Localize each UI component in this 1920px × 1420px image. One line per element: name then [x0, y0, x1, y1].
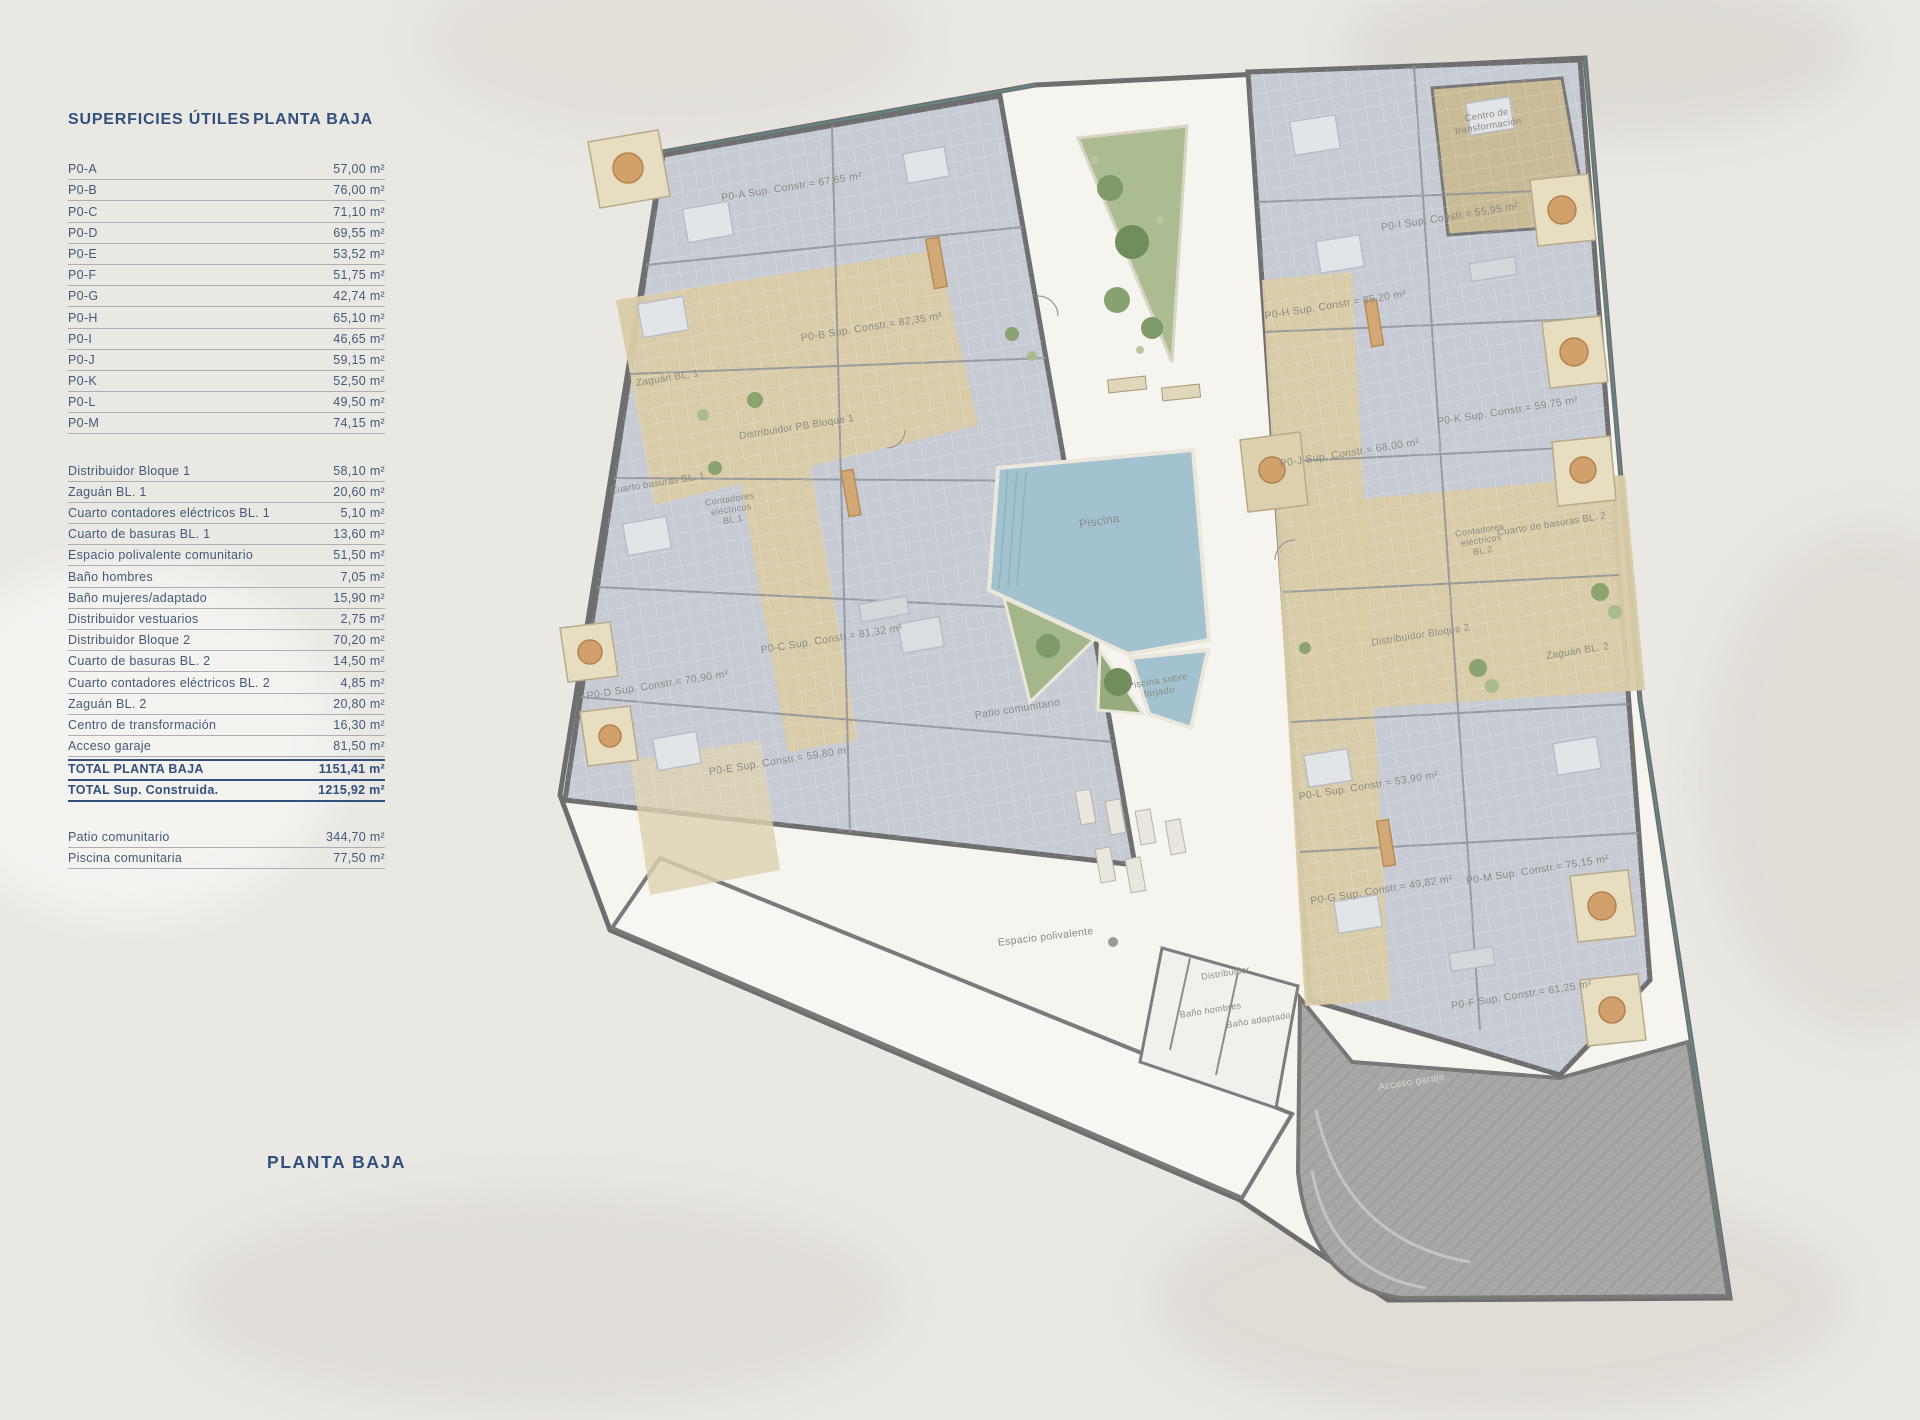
row-label: P0-B [68, 183, 97, 197]
table-row: P0-K52,50 m² [68, 371, 385, 392]
table-row: P0-I46,65 m² [68, 329, 385, 350]
table-row: P0-D69,55 m² [68, 223, 385, 244]
hall-column [1108, 937, 1118, 947]
table-row: TOTAL PLANTA BAJA1151,41 m² [68, 759, 385, 781]
row-value: 13,60 m² [333, 527, 385, 541]
row-label: Distribuidor Bloque 2 [68, 633, 190, 647]
row-label: P0-L [68, 395, 96, 409]
row-label: P0-A [68, 162, 97, 176]
table-row: Zaguán BL. 120,60 m² [68, 482, 385, 503]
row-label: P0-E [68, 247, 97, 261]
table-row: TOTAL Sup. Construida.1215,92 m² [68, 781, 385, 803]
row-value: 77,50 m² [333, 851, 385, 865]
table-row: Distribuidor Bloque 158,10 m² [68, 460, 385, 481]
row-label: P0-J [68, 353, 95, 367]
row-value: 7,05 m² [341, 570, 385, 584]
row-label: Cuarto de basuras BL. 1 [68, 527, 210, 541]
common-area-rows: Distribuidor Bloque 158,10 m²Zaguán BL. … [68, 460, 385, 757]
row-label: Distribuidor vestuarios [68, 612, 199, 626]
row-value: 65,10 m² [333, 311, 385, 325]
table-row: Cuarto de basuras BL. 214,50 m² [68, 651, 385, 672]
row-value: 53,52 m² [333, 247, 385, 261]
row-label: P0-C [68, 205, 98, 219]
table-row: P0-M74,15 m² [68, 413, 385, 434]
row-value: 74,15 m² [333, 416, 385, 430]
table-row: Piscina comunitaria77,50 m² [68, 848, 385, 870]
row-label: P0-M [68, 416, 99, 430]
row-label: Zaguán BL. 2 [68, 697, 147, 711]
row-value: 76,00 m² [333, 183, 385, 197]
table-row: Espacio polivalente comunitario51,50 m² [68, 545, 385, 566]
row-label: Zaguán BL. 1 [68, 485, 147, 499]
row-value: 2,75 m² [341, 612, 385, 626]
row-label: Baño hombres [68, 570, 153, 584]
table-row: P0-G42,74 m² [68, 286, 385, 307]
row-value: 15,90 m² [333, 591, 385, 605]
row-value: 70,20 m² [333, 633, 385, 647]
apartment-rows: P0-A57,00 m²P0-B76,00 m²P0-C71,10 m²P0-D… [68, 159, 385, 434]
row-label: Acceso garaje [68, 739, 151, 753]
row-value: 46,65 m² [333, 332, 385, 346]
row-label: Cuarto contadores eléctricos BL. 1 [68, 506, 270, 520]
table-row: P0-H65,10 m² [68, 307, 385, 328]
sheet-title: PLANTA BAJA [267, 1152, 406, 1173]
row-value: 71,10 m² [333, 205, 385, 219]
table-row: P0-C71,10 m² [68, 201, 385, 222]
row-value: 42,74 m² [333, 289, 385, 303]
row-value: 344,70 m² [326, 830, 385, 844]
table-row: P0-L49,50 m² [68, 392, 385, 413]
row-value: 57,00 m² [333, 162, 385, 176]
table-row: Centro de transformación16,30 m² [68, 715, 385, 736]
row-label: Patio comunitario [68, 830, 170, 844]
row-value: 58,10 m² [333, 464, 385, 478]
row-value: 51,50 m² [333, 548, 385, 562]
row-label: P0-G [68, 289, 98, 303]
row-value: 69,55 m² [333, 226, 385, 240]
table-row: Cuarto de basuras BL. 113,60 m² [68, 524, 385, 545]
table-row: Zaguán BL. 220,80 m² [68, 694, 385, 715]
row-label: P0-F [68, 268, 96, 282]
exterior-rows: Patio comunitario344,70 m²Piscina comuni… [68, 826, 385, 869]
table-row: P0-F51,75 m² [68, 265, 385, 286]
row-value: 49,50 m² [333, 395, 385, 409]
row-value: 20,60 m² [333, 485, 385, 499]
table-row: P0-B76,00 m² [68, 180, 385, 201]
row-label: Distribuidor Bloque 1 [68, 464, 190, 478]
row-value: 20,80 m² [333, 697, 385, 711]
row-label: Piscina comunitaria [68, 851, 182, 865]
row-value: 59,15 m² [333, 353, 385, 367]
row-value: 1151,41 m² [319, 762, 385, 776]
row-label: Baño mujeres/adaptado [68, 591, 207, 605]
row-label: Cuarto contadores eléctricos BL. 2 [68, 676, 270, 690]
row-label: Cuarto de basuras BL. 2 [68, 654, 210, 668]
row-value: 1215,92 m² [318, 783, 385, 797]
table-row: P0-J59,15 m² [68, 350, 385, 371]
row-label: Centro de transformación [68, 718, 216, 732]
row-value: 51,75 m² [333, 268, 385, 282]
surface-table: SUPERFICIES ÚTILES PLANTA BAJA P0-A57,00… [68, 111, 385, 869]
table-row: Baño mujeres/adaptado15,90 m² [68, 588, 385, 609]
table-row: P0-E53,52 m² [68, 244, 385, 265]
table-row: Distribuidor vestuarios2,75 m² [68, 609, 385, 630]
table-title: SUPERFICIES ÚTILES [68, 111, 250, 129]
table-row: Cuarto contadores eléctricos BL. 15,10 m… [68, 503, 385, 524]
table-header: SUPERFICIES ÚTILES PLANTA BAJA [68, 111, 385, 129]
row-label: P0-I [68, 332, 92, 346]
table-subtitle: PLANTA BAJA [253, 111, 385, 129]
row-value: 5,10 m² [341, 506, 385, 520]
row-label: TOTAL Sup. Construida. [68, 783, 218, 797]
row-label: P0-H [68, 311, 98, 325]
row-value: 81,50 m² [333, 739, 385, 753]
table-row: P0-A57,00 m² [68, 159, 385, 180]
row-value: 52,50 m² [333, 374, 385, 388]
row-value: 16,30 m² [333, 718, 385, 732]
table-row: Cuarto contadores eléctricos BL. 24,85 m… [68, 672, 385, 693]
table-row: Acceso garaje81,50 m² [68, 736, 385, 757]
row-value: 4,85 m² [341, 676, 385, 690]
row-label: P0-K [68, 374, 97, 388]
table-row: Distribuidor Bloque 270,20 m² [68, 630, 385, 651]
row-label: P0-D [68, 226, 98, 240]
table-row: Baño hombres7,05 m² [68, 566, 385, 587]
total-rows: TOTAL PLANTA BAJA1151,41 m²TOTAL Sup. Co… [68, 759, 385, 802]
table-row: Patio comunitario344,70 m² [68, 826, 385, 848]
row-value: 14,50 m² [333, 654, 385, 668]
row-label: Espacio polivalente comunitario [68, 548, 253, 562]
row-label: TOTAL PLANTA BAJA [68, 762, 204, 776]
